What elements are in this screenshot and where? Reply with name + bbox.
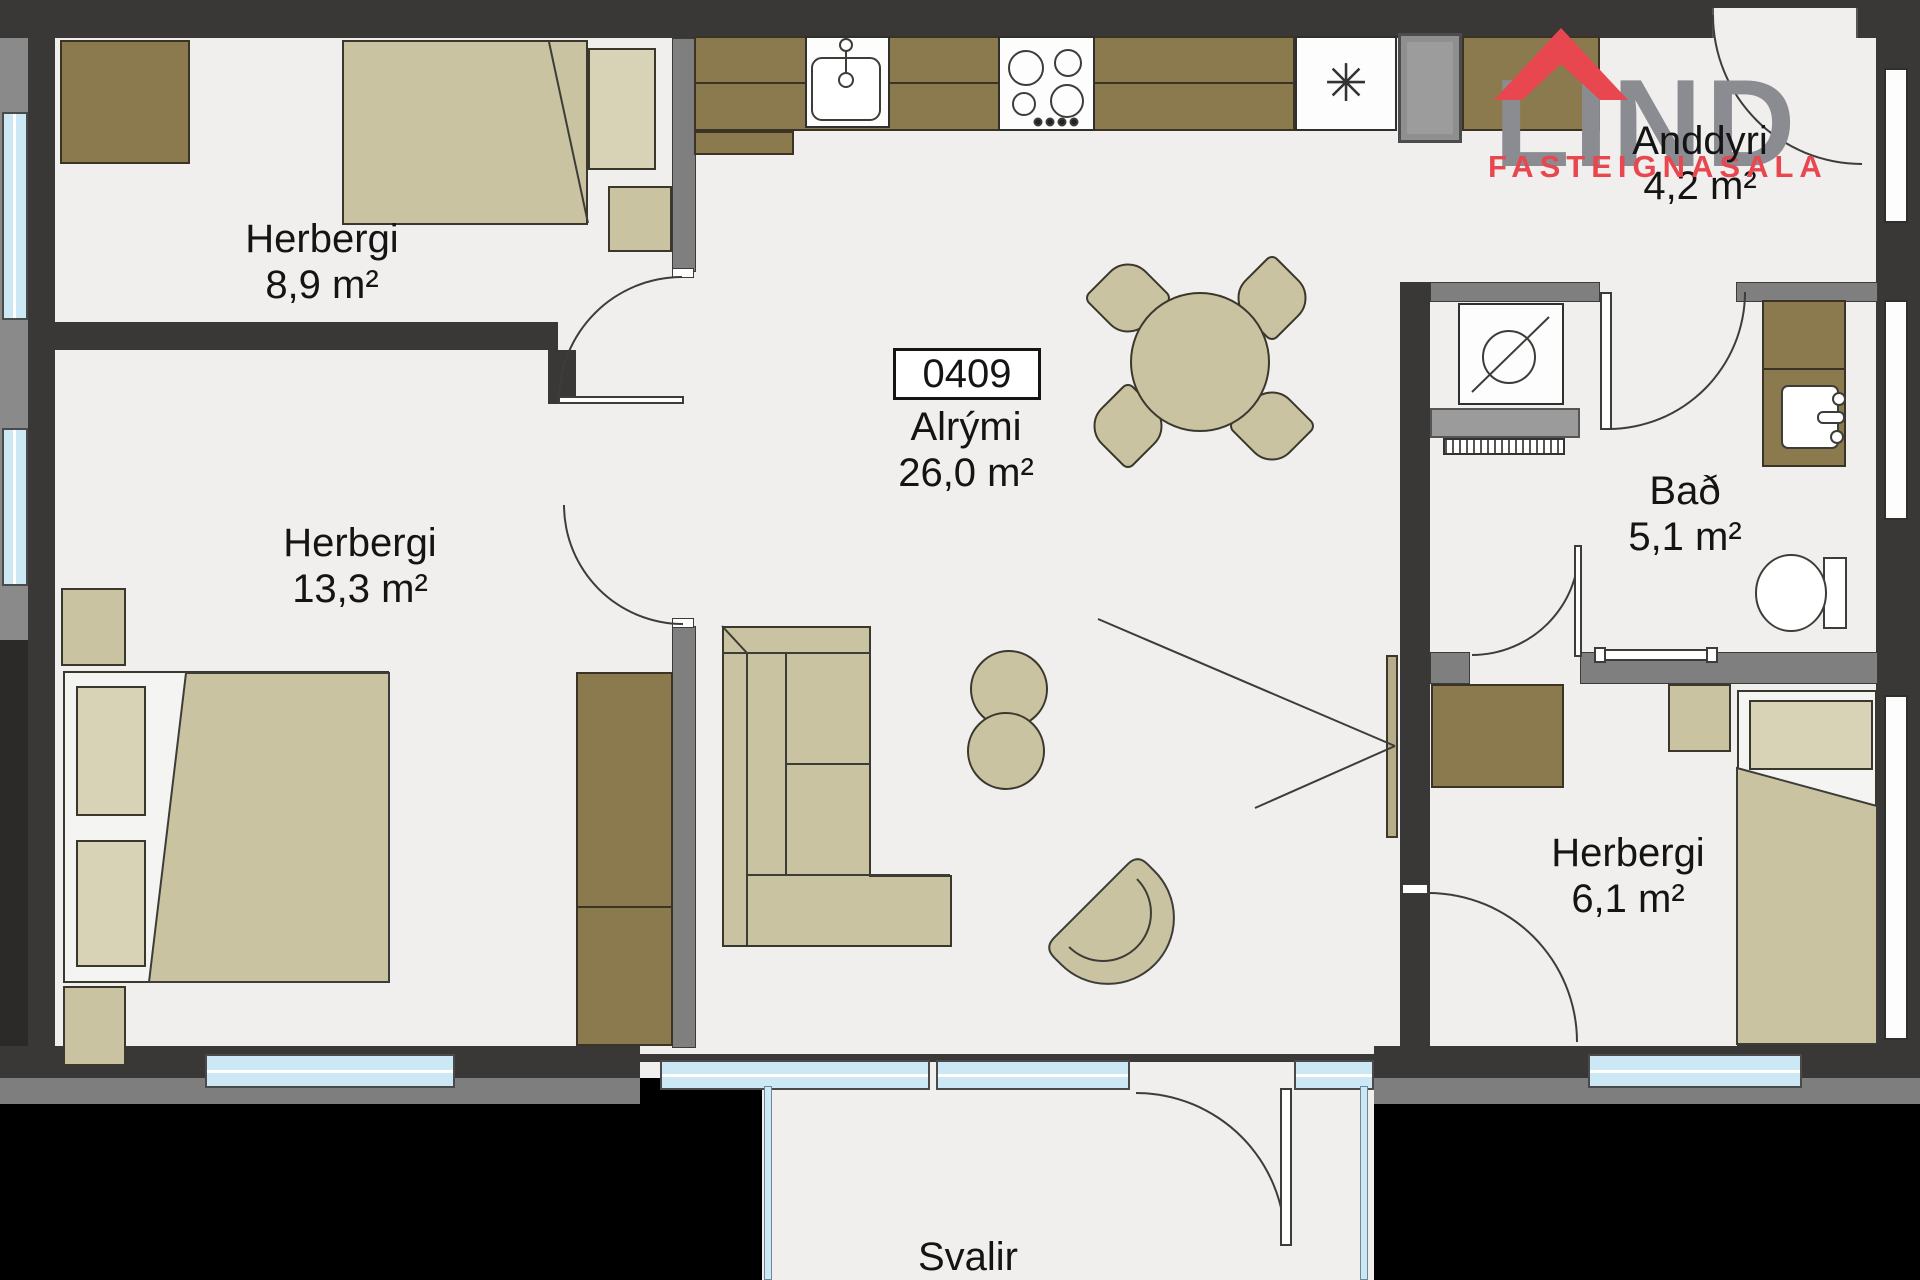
tv bbox=[1386, 655, 1398, 838]
nightstand-bedroom3 bbox=[1668, 684, 1731, 752]
wall-left bbox=[28, 38, 55, 1078]
unit-number-box: 0409 bbox=[893, 348, 1041, 400]
kitchen-counter-line bbox=[696, 82, 1293, 84]
pillow-bedroom2-top bbox=[76, 686, 146, 816]
dresser-bedroom3 bbox=[1431, 684, 1564, 788]
bath-counter bbox=[1430, 408, 1580, 438]
fridge-asterisk-icon: ✳ bbox=[1324, 55, 1368, 113]
label-bath-name: Bað bbox=[1628, 468, 1741, 514]
label-bedroom3: Herbergi 6,1 m² bbox=[1551, 830, 1704, 922]
wall-bath-bottom-right bbox=[1580, 652, 1878, 684]
window-balcony-1 bbox=[660, 1060, 930, 1090]
label-bedroom2-name: Herbergi bbox=[283, 520, 436, 566]
dining-table bbox=[1130, 292, 1270, 432]
fridge-unit: ✳ bbox=[1295, 36, 1397, 131]
vanity-line bbox=[1764, 368, 1844, 370]
washing-machine bbox=[1458, 303, 1564, 405]
kitchen-sink-unit bbox=[805, 36, 890, 128]
kitchen-counter-return bbox=[694, 131, 794, 155]
label-balcony: Svalir bbox=[918, 1234, 1018, 1280]
wall-bath-bottom-left bbox=[1430, 652, 1470, 684]
label-bedroom2-area: 13,3 m² bbox=[283, 566, 436, 612]
wall-left-outer-dark bbox=[0, 640, 28, 1078]
bath-vanity bbox=[1762, 300, 1846, 467]
nightstand-bedroom1 bbox=[608, 186, 672, 252]
wall-bedroom1-bottom bbox=[28, 322, 558, 350]
unit-number: 0409 bbox=[923, 352, 1012, 396]
wall-bedroom1-right bbox=[672, 38, 696, 272]
label-bedroom3-name: Herbergi bbox=[1551, 830, 1704, 876]
label-bedroom1-area: 8,9 m² bbox=[245, 262, 398, 308]
label-living: Alrými 26,0 m² bbox=[898, 404, 1034, 496]
door-leaf-bedroom1 bbox=[558, 396, 684, 404]
pillow-bedroom1 bbox=[588, 48, 656, 170]
balcony-edge-right bbox=[1360, 1086, 1368, 1280]
label-entry-name: Anddyri bbox=[1632, 118, 1768, 164]
wall-entry-bottom-right bbox=[1736, 282, 1878, 302]
wardrobe-divider bbox=[578, 906, 671, 908]
wall-hall bbox=[1400, 282, 1430, 1046]
bed-bedroom1 bbox=[342, 40, 588, 225]
sofa-chaise bbox=[869, 875, 952, 947]
floorplan-stage: ✳ bbox=[0, 0, 1920, 1280]
side-table-2 bbox=[967, 712, 1045, 790]
wall-entry-bottom-left bbox=[1430, 282, 1600, 302]
sofa-vertical bbox=[722, 626, 871, 947]
nightstand-bedroom2-bottom bbox=[63, 986, 126, 1066]
window-bottom-right bbox=[1588, 1054, 1802, 1088]
window-right-bath bbox=[1884, 300, 1908, 520]
door-sill-bedroom3 bbox=[1402, 884, 1428, 894]
label-bedroom2: Herbergi 13,3 m² bbox=[283, 520, 436, 612]
window-left-lower bbox=[2, 428, 28, 586]
label-bedroom1: Herbergi 8,9 m² bbox=[245, 216, 398, 308]
window-left-upper bbox=[2, 112, 28, 320]
balcony-edge-left bbox=[764, 1086, 772, 1280]
label-bedroom1-name: Herbergi bbox=[245, 216, 398, 262]
label-bath-area: 5,1 m² bbox=[1628, 514, 1741, 560]
label-bedroom3-area: 6,1 m² bbox=[1551, 876, 1704, 922]
radiator bbox=[1443, 438, 1565, 455]
label-living-area: 26,0 m² bbox=[898, 450, 1034, 496]
stove-unit bbox=[998, 36, 1095, 131]
wall-bedroom2-right bbox=[672, 626, 696, 1048]
tall-cabinet bbox=[1398, 33, 1462, 143]
nightstand-bedroom2-top bbox=[61, 588, 126, 666]
door-leaf-bath-inner bbox=[1574, 545, 1582, 657]
window-right-bedroom3 bbox=[1884, 695, 1908, 1040]
wardrobe-bedroom1 bbox=[60, 40, 190, 164]
pillow-bedroom3 bbox=[1749, 700, 1873, 770]
window-right-entry bbox=[1884, 68, 1908, 223]
label-living-name: Alrými bbox=[898, 404, 1034, 450]
logo-roof-icon bbox=[1480, 18, 1680, 108]
window-bottom-left bbox=[205, 1054, 455, 1088]
window-balcony-2 bbox=[936, 1060, 1130, 1090]
label-bath: Bað 5,1 m² bbox=[1628, 468, 1741, 560]
door-leaf-balcony bbox=[1280, 1088, 1292, 1246]
wardrobe-bedroom2 bbox=[576, 672, 673, 1046]
pillow-bedroom2-bottom bbox=[76, 840, 146, 967]
